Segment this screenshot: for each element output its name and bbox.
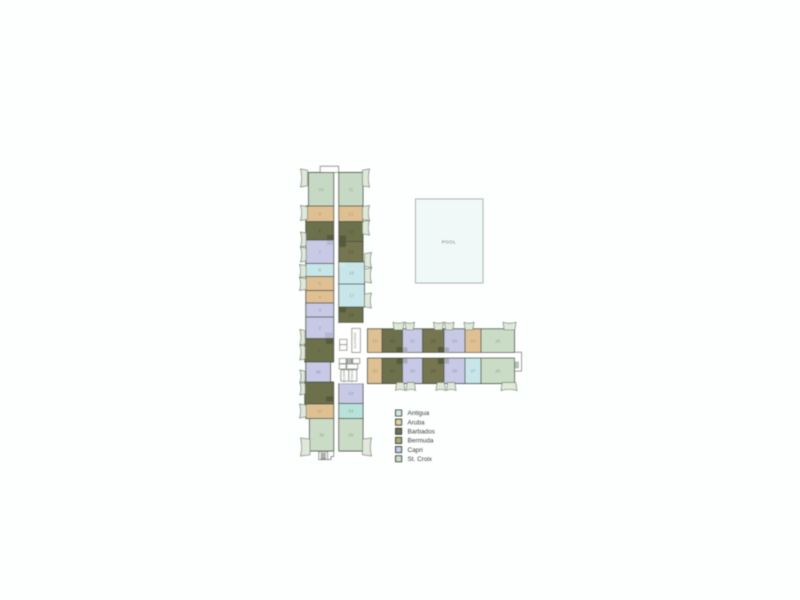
- svg-text:10: 10: [319, 187, 325, 192]
- svg-text:16: 16: [349, 271, 355, 276]
- svg-text:Aruba: Aruba: [408, 419, 425, 426]
- svg-text:38: 38: [316, 370, 322, 375]
- svg-text:3: 3: [319, 308, 322, 313]
- svg-text:33: 33: [348, 391, 354, 396]
- svg-text:POOL: POOL: [442, 240, 456, 245]
- svg-text:6: 6: [319, 268, 322, 273]
- svg-text:14: 14: [348, 249, 354, 254]
- svg-text:18: 18: [348, 313, 354, 318]
- svg-text:9: 9: [319, 211, 322, 216]
- svg-text:St. Croix: St. Croix: [408, 456, 433, 463]
- svg-text:30: 30: [410, 368, 416, 373]
- svg-text:Antigua: Antigua: [408, 410, 430, 417]
- svg-text:12: 12: [348, 211, 354, 216]
- svg-text:37: 37: [317, 409, 323, 414]
- svg-text:35: 35: [348, 432, 354, 437]
- svg-text:34: 34: [348, 409, 354, 414]
- svg-text:2: 2: [319, 325, 322, 330]
- svg-text:28: 28: [452, 368, 458, 373]
- svg-text:26: 26: [495, 368, 501, 373]
- svg-text:27: 27: [470, 368, 476, 373]
- svg-text:Bermuda: Bermuda: [408, 438, 434, 445]
- svg-text:17: 17: [349, 293, 355, 298]
- svg-text:4: 4: [319, 294, 322, 299]
- svg-text:23: 23: [452, 338, 458, 343]
- svg-text:LAUNDRY: LAUNDRY: [342, 369, 346, 383]
- svg-text:25: 25: [495, 338, 501, 343]
- svg-text:24: 24: [470, 338, 476, 343]
- svg-text:1: 1: [318, 348, 321, 353]
- svg-text:20: 20: [390, 338, 396, 343]
- svg-text:Barbados: Barbados: [408, 429, 435, 436]
- svg-text:36: 36: [319, 432, 325, 437]
- svg-text:29: 29: [431, 368, 437, 373]
- svg-text:32: 32: [372, 368, 378, 373]
- svg-text:19: 19: [372, 338, 378, 343]
- svg-text:21: 21: [410, 338, 416, 343]
- svg-text:5: 5: [319, 281, 322, 286]
- svg-text:31: 31: [390, 368, 396, 373]
- svg-text:8: 8: [319, 228, 322, 233]
- svg-text:13: 13: [348, 229, 354, 234]
- svg-text:11: 11: [348, 187, 353, 192]
- svg-text:STORAGE: STORAGE: [350, 368, 354, 382]
- svg-text:ELEVATOR: ELEVATOR: [353, 332, 357, 349]
- svg-text:Capri: Capri: [408, 447, 423, 454]
- svg-text:7: 7: [319, 249, 322, 254]
- svg-text:22: 22: [431, 338, 437, 343]
